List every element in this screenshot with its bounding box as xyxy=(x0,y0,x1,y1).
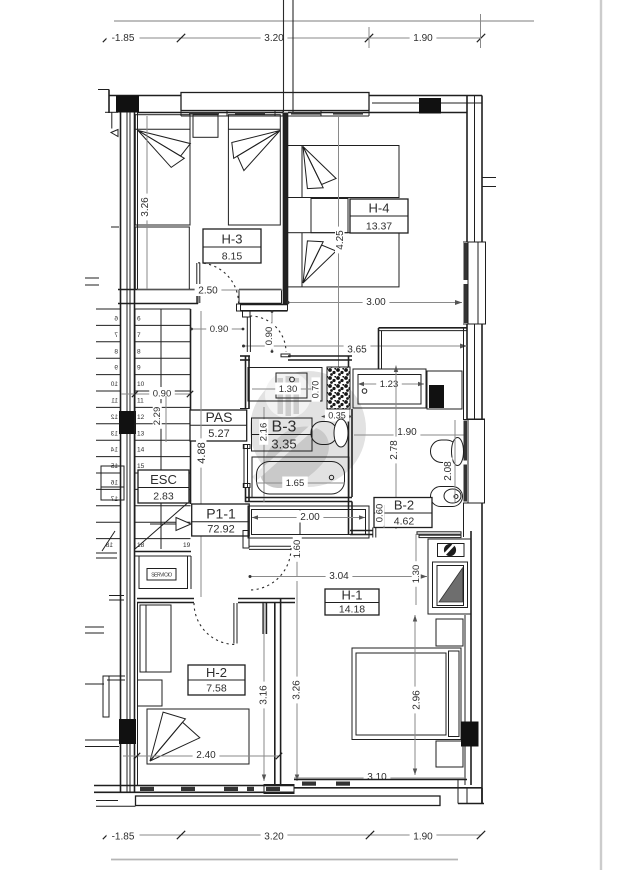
svg-text:1.65: 1.65 xyxy=(286,478,305,489)
svg-text:19: 19 xyxy=(183,542,191,549)
svg-text:1.60: 1.60 xyxy=(292,540,303,559)
svg-text:6: 6 xyxy=(137,316,141,323)
svg-text:18: 18 xyxy=(105,542,113,549)
svg-text:PAS: PAS xyxy=(206,409,233,425)
svg-text:17: 17 xyxy=(110,496,118,503)
svg-text:2.16: 2.16 xyxy=(259,423,270,442)
svg-text:3.16: 3.16 xyxy=(258,685,269,705)
svg-text:10: 10 xyxy=(110,381,118,388)
svg-text:6: 6 xyxy=(114,316,118,323)
svg-text:7: 7 xyxy=(137,332,141,339)
svg-text:2.96: 2.96 xyxy=(411,690,422,710)
svg-text:18: 18 xyxy=(137,542,145,549)
svg-text:H-4: H-4 xyxy=(369,201,390,216)
svg-text:13: 13 xyxy=(110,430,118,437)
svg-text:0.70: 0.70 xyxy=(311,381,321,399)
svg-text:H-2: H-2 xyxy=(206,665,227,680)
svg-text:ESC: ESC xyxy=(150,472,177,487)
svg-text:8.15: 8.15 xyxy=(222,251,243,263)
svg-text:10: 10 xyxy=(137,381,145,388)
svg-text:3.20: 3.20 xyxy=(264,33,284,44)
svg-text:11: 11 xyxy=(111,398,118,405)
svg-text:7: 7 xyxy=(114,332,118,339)
svg-text:16: 16 xyxy=(110,480,118,487)
svg-text:13: 13 xyxy=(137,430,145,437)
svg-text:14: 14 xyxy=(110,447,118,454)
svg-text:12: 12 xyxy=(110,414,118,421)
svg-text:P1-1: P1-1 xyxy=(206,506,236,522)
svg-text:72.92: 72.92 xyxy=(207,524,235,536)
svg-text:11: 11 xyxy=(137,398,144,405)
svg-text:4.25: 4.25 xyxy=(335,230,346,250)
svg-text:SERVICIO: SERVICIO xyxy=(151,573,172,579)
svg-text:3.65: 3.65 xyxy=(347,345,367,356)
svg-text:0.90: 0.90 xyxy=(264,327,275,346)
svg-text:B-2: B-2 xyxy=(394,498,414,513)
svg-text:8: 8 xyxy=(137,348,141,355)
svg-text:2.29: 2.29 xyxy=(152,407,163,426)
svg-text:2.50: 2.50 xyxy=(198,286,218,297)
svg-text:3.26: 3.26 xyxy=(140,197,151,217)
svg-text:H-3: H-3 xyxy=(222,232,243,247)
svg-text:3.26: 3.26 xyxy=(291,680,302,700)
svg-text:4.62: 4.62 xyxy=(394,516,415,528)
svg-text:7.58: 7.58 xyxy=(206,683,227,695)
svg-text:0.60: 0.60 xyxy=(375,504,386,523)
svg-text:1.90: 1.90 xyxy=(397,427,417,438)
svg-text:1.30: 1.30 xyxy=(279,384,298,395)
svg-text:H-1: H-1 xyxy=(342,588,363,603)
svg-text:3.35: 3.35 xyxy=(271,437,296,452)
svg-text:2.78: 2.78 xyxy=(389,440,400,460)
svg-text:-1.85: -1.85 xyxy=(112,832,135,843)
svg-text:B-3: B-3 xyxy=(272,419,297,436)
svg-text:0.90: 0.90 xyxy=(210,324,229,335)
svg-text:1.30: 1.30 xyxy=(411,565,422,584)
svg-text:12: 12 xyxy=(137,414,145,421)
svg-text:14.18: 14.18 xyxy=(339,604,365,616)
svg-text:8: 8 xyxy=(114,348,118,355)
svg-text:4.88: 4.88 xyxy=(196,442,208,463)
svg-text:2.83: 2.83 xyxy=(153,491,174,503)
svg-text:3.00: 3.00 xyxy=(366,297,386,308)
svg-text:9: 9 xyxy=(114,365,118,372)
svg-text:2.00: 2.00 xyxy=(300,512,320,523)
svg-text:1.23: 1.23 xyxy=(380,379,399,390)
svg-text:3.04: 3.04 xyxy=(329,571,349,582)
svg-text:5.27: 5.27 xyxy=(208,428,229,440)
svg-text:9: 9 xyxy=(137,365,141,372)
svg-text:-1.85: -1.85 xyxy=(112,33,135,44)
svg-text:0.90: 0.90 xyxy=(153,388,172,399)
svg-text:13.37: 13.37 xyxy=(366,221,392,233)
svg-text:15: 15 xyxy=(110,463,118,470)
svg-text:1.90: 1.90 xyxy=(413,33,433,44)
svg-text:3.20: 3.20 xyxy=(264,832,284,843)
svg-text:14: 14 xyxy=(137,447,145,454)
svg-text:1.90: 1.90 xyxy=(413,832,433,843)
svg-text:15: 15 xyxy=(137,463,145,470)
svg-text:2.08: 2.08 xyxy=(443,461,454,481)
svg-text:3.10: 3.10 xyxy=(367,772,387,783)
svg-text:2.40: 2.40 xyxy=(196,750,216,761)
